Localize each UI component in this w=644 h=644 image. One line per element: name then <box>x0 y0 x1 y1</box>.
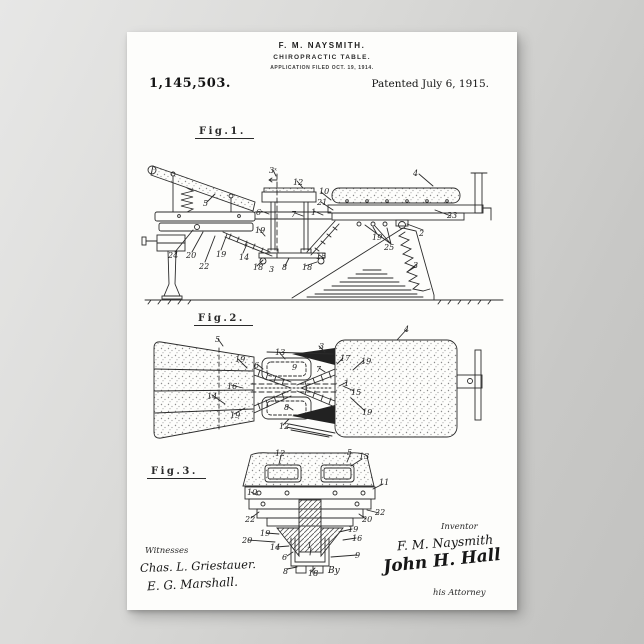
figure-1-label: Fig.1. <box>195 126 254 139</box>
attorney-label: his Attorney <box>433 588 486 598</box>
patent-number: 1,145,503. <box>149 76 231 91</box>
witnesses-label: Witnesses <box>145 546 188 556</box>
inventor-label: Inventor <box>441 522 478 532</box>
figure-2-drawing <box>139 312 505 462</box>
figure-3-label: Fig.3. <box>147 466 206 479</box>
patent-header: F. M. NAYSMITH. CHIROPRACTIC TABLE. APPL… <box>127 41 517 71</box>
figure-2-label: Fig.2. <box>194 313 253 326</box>
scene-background: { "header": { "inventor_line": "F. M. NA… <box>0 0 644 644</box>
patent-number-row: 1,145,503. Patented July 6, 1915. <box>149 76 489 91</box>
inventor-name-line: F. M. NAYSMITH. <box>127 41 517 50</box>
figure-1-drawing <box>135 124 513 306</box>
figure-2: Fig.2. 5191614191396812371719115194 <box>139 312 505 462</box>
by-label: By <box>328 566 340 576</box>
patent-poster-sheet: F. M. NAYSMITH. CHIROPRACTIC TABLE. APPL… <box>127 32 517 610</box>
patent-title-line: CHIROPRACTIC TABLE. <box>127 54 517 61</box>
figure-1: Fig.1. 53ˣ121021671423225192420221919141… <box>135 124 513 306</box>
patent-date: Patented July 6, 1915. <box>371 78 489 90</box>
application-line: APPLICATION FILED OCT. 19, 1914. <box>127 65 517 71</box>
